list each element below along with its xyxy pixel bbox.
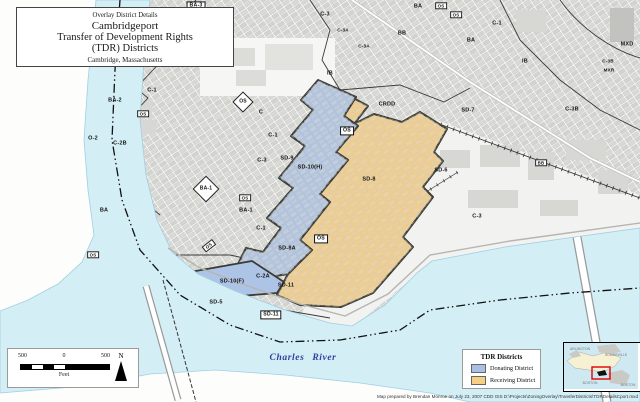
map-label-sd-5: SD-5: [209, 300, 222, 306]
map-label-c-1: C-1: [492, 21, 501, 27]
inset-label-boston: BOSTON: [621, 383, 636, 387]
title-city-district: Cambridgeport: [17, 20, 233, 32]
donating-swatch: [471, 364, 486, 373]
map-label-sd-6: SD-6: [434, 168, 447, 174]
map-label-sd-7: SD-7: [461, 108, 474, 114]
north-arrow-icon: [115, 361, 127, 381]
map-label-c-3: C-3: [320, 12, 329, 18]
map-label-sd-9: SD-9: [280, 156, 293, 162]
map-label-o-2: O-2: [88, 136, 98, 142]
title-subheading: Overlay District Details: [17, 12, 233, 19]
map-label-charles-river: Charles River: [270, 353, 337, 363]
map-label-c: C: [259, 110, 263, 116]
map-label-os: OS: [450, 11, 462, 18]
map-label-ba: BA: [467, 38, 475, 44]
map-label-ba-2: BA-2: [108, 98, 122, 104]
map-label-c-3: C-3: [472, 214, 481, 220]
map-label-os: OS: [239, 194, 251, 201]
legend-row-donating: Donating District: [471, 364, 540, 373]
map-label-c-3: C-3: [257, 158, 266, 164]
scale-right: 500: [101, 353, 110, 359]
title-box: Overlay District Details Cambridgeport T…: [16, 7, 234, 67]
map-label-c-3b: C-3B: [602, 60, 614, 65]
inset-label-boston: BOSTON: [583, 381, 598, 385]
donating-label: Donating District: [490, 365, 533, 372]
map-label-c-2a: C-2A: [256, 274, 270, 280]
receiving-label: Receiving District: [490, 377, 535, 384]
map-label-crdd: CRDD: [379, 102, 396, 108]
locator-inset: ARLINGTONSOMERVILLEBOSTONBOSTON: [563, 342, 640, 392]
north-label: N: [118, 352, 123, 360]
map-label-c-1: C-1: [268, 133, 277, 139]
map-label-sd-10-f-: SD-10(F): [220, 279, 244, 285]
map-label-mxr: MXR: [604, 69, 615, 74]
map-label-c-1: C-1: [256, 226, 265, 232]
map-label-os: OS: [435, 2, 447, 9]
map-label-c-2b: C-2B: [113, 141, 127, 147]
inset-label-somerville: SOMERVILLE: [605, 353, 627, 357]
map-label-sd-10-h-: SD-10(H): [298, 165, 323, 171]
map-label-ib: IB: [522, 59, 528, 65]
map-label-os: OS: [314, 234, 328, 243]
scale-mid: 0: [63, 353, 66, 359]
map-label-c-1: C-1: [147, 88, 156, 94]
map-label-sd-11: SD-11: [260, 310, 281, 319]
scale-bar: 500 0 500 Feet N: [7, 348, 139, 388]
map-label-c-3b: C-3B: [565, 107, 579, 113]
title-main-1: Transfer of Development Rights: [17, 32, 233, 43]
map-label-ib: IB: [327, 71, 333, 77]
map-label-c-3a: C-3A: [337, 29, 349, 34]
map-label-bb: BB: [535, 159, 547, 166]
map-label-os: OS: [87, 251, 99, 258]
legend-title: TDR Districts: [463, 353, 540, 361]
map-label-sd-8: SD-8: [362, 177, 375, 183]
inset-label-arlington: ARLINGTON: [570, 347, 590, 351]
attribution-text: Map prepared by Brendan Monroe on July 2…: [377, 394, 638, 399]
map-label-sd-11: SD-11: [278, 283, 294, 289]
legend: TDR Districts Donating District Receivin…: [462, 349, 541, 389]
map-label-sd-8a: SD-8A: [278, 246, 296, 252]
scale-left: 500: [18, 353, 27, 359]
scale-unit: Feet: [20, 372, 108, 378]
map-label-c-3a: C-3A: [358, 45, 370, 50]
scale-numbers: 500 0 500: [18, 353, 110, 359]
map-label-mxd: MXD: [621, 42, 634, 48]
receiving-swatch: [471, 376, 486, 385]
map-label-os: OS: [340, 126, 354, 135]
map-label-ba-1: BA-1: [200, 187, 212, 192]
map-label-bb: BB: [398, 31, 406, 37]
map-label-ba-1: BA-1: [239, 208, 253, 214]
map-label-os: OS: [239, 100, 247, 105]
title-location: Cambridge, Massachusetts: [17, 56, 233, 64]
legend-row-receiving: Receiving District: [471, 376, 540, 385]
map-page: BA-3C-1C-3C-3AC-3ABAOSOSC-1BABBMXDC-3BMX…: [0, 0, 640, 402]
scale-bar-graphic: [20, 364, 110, 370]
map-label-os: OS: [202, 239, 217, 253]
map-label-os: OS: [137, 110, 149, 117]
map-label-ba: BA: [414, 4, 422, 10]
title-main-2: (TDR) Districts: [17, 43, 233, 54]
map-label-ba: BA: [100, 208, 108, 214]
north-indicator: N: [113, 352, 129, 381]
